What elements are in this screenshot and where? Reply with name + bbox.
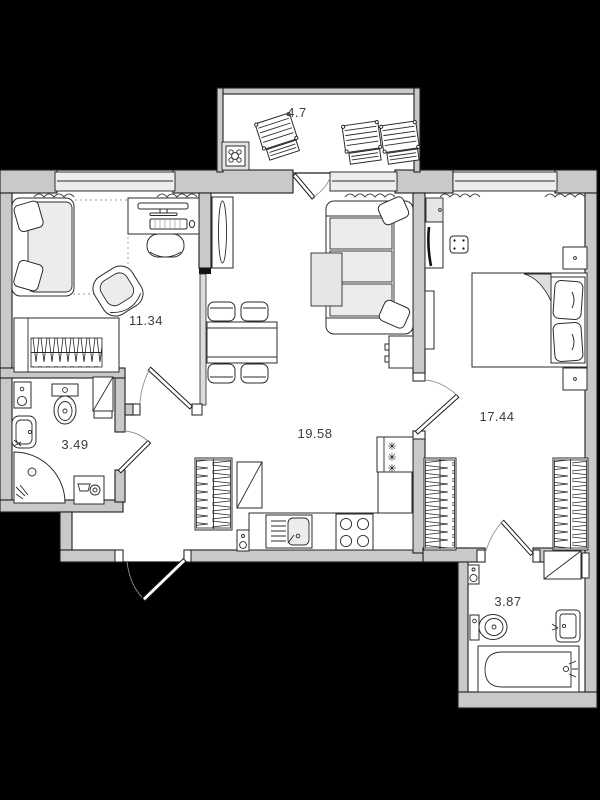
nightstand-top: [563, 247, 587, 269]
chair: [241, 302, 268, 321]
svg-text:✳: ✳: [387, 463, 396, 475]
wardrobe-small-room: [14, 318, 119, 372]
water-heater-box-2: [468, 565, 479, 584]
window-room-small: [55, 172, 175, 191]
window-living: [330, 172, 397, 191]
pillow: [553, 280, 584, 320]
mouse: [189, 220, 194, 227]
label-balcony: 4.7: [287, 105, 307, 120]
stove: [336, 514, 373, 550]
fridge: [237, 462, 262, 508]
nightstand-bottom: [563, 368, 587, 390]
ottoman: [450, 236, 468, 253]
label-bedroom: 17.44: [479, 409, 514, 424]
toilet: [52, 384, 78, 424]
water-heater-box: [14, 382, 31, 408]
desk: [128, 198, 199, 234]
keyboard: [150, 219, 187, 229]
wardrobe-closet-left: [424, 458, 456, 550]
window-bedroom: [453, 172, 557, 191]
desk-chair: [147, 234, 184, 257]
side-table: [385, 336, 413, 368]
wardrobe-living: [195, 458, 232, 530]
bathtub: [478, 646, 579, 692]
kitchen-cabinet: [237, 530, 249, 551]
sink-right: [552, 610, 580, 642]
floor-plan: ✳ ✳ ✳: [0, 0, 600, 800]
dresser: [425, 291, 434, 349]
sofa-small-room: [12, 198, 74, 296]
chair: [208, 302, 235, 321]
label-room-small: 11.34: [129, 313, 163, 328]
thin-partition: [200, 274, 206, 405]
dining-set: [207, 302, 277, 383]
label-bathroom-right: 3.87: [494, 594, 521, 609]
toilet-2: [470, 615, 507, 641]
plant-table: [222, 142, 249, 170]
laundry-unit: [74, 476, 104, 504]
label-bathroom-left: 3.49: [61, 437, 88, 452]
washing-machine-left: [93, 377, 113, 418]
washing-machine-right: [544, 551, 589, 579]
double-bed: [472, 273, 587, 367]
sliding-wardrobe-hall: [212, 197, 233, 268]
cabinet-top: [426, 198, 443, 222]
kitchen-sink: [266, 515, 312, 548]
label-living-kitchen: 19.58: [297, 426, 332, 441]
vent-shaft: ✳ ✳ ✳: [377, 437, 413, 475]
chair: [241, 364, 268, 383]
chair: [208, 364, 235, 383]
wardrobe-closet-right: [553, 458, 588, 550]
sink-left: [12, 416, 36, 448]
kitchen-counter-side: [378, 472, 412, 513]
floor-plan-canvas: ✳ ✳ ✳: [0, 0, 600, 800]
tv-unit: [425, 222, 443, 268]
pillow: [553, 322, 584, 362]
coffee-table: [311, 253, 342, 306]
